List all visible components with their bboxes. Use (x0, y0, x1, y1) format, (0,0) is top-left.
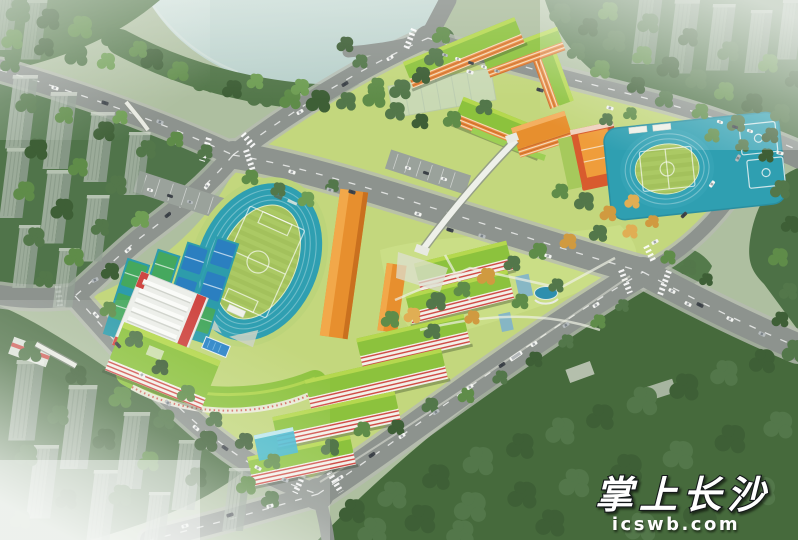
watermark-title: 掌上长沙 (595, 473, 771, 517)
watermark-domain: icswb.com (612, 514, 740, 535)
campus-aerial-rendering: 掌上长沙 icswb.com (0, 0, 798, 540)
rendering-viewport: 掌上长沙 icswb.com (0, 0, 798, 540)
